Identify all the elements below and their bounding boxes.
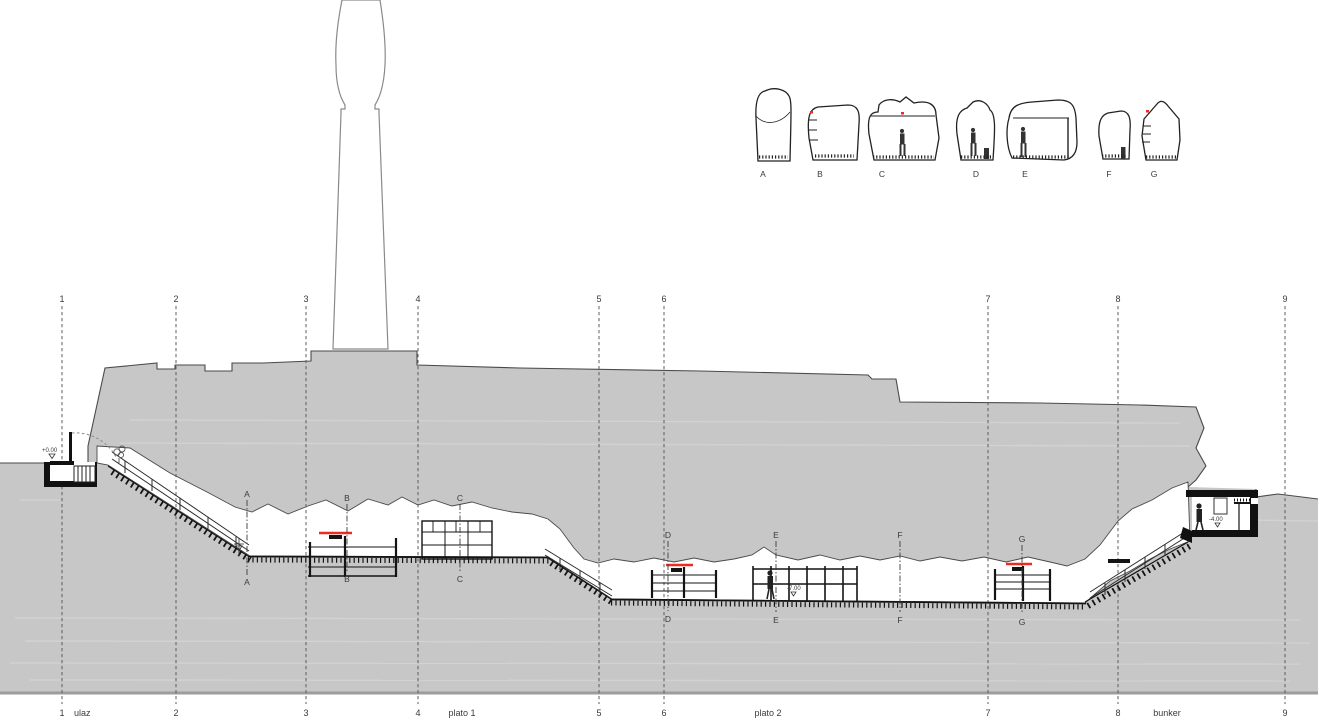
grid-number: 7: [985, 708, 990, 718]
section-letter: D: [665, 530, 671, 540]
section-letter: E: [773, 615, 779, 625]
cross-section-B: [808, 105, 859, 160]
entrance-stair-block: [74, 466, 95, 482]
section-letter: C: [457, 574, 463, 584]
grid-number: 8: [1115, 294, 1120, 304]
rack-B-object: [329, 535, 342, 539]
legend-label: D: [973, 169, 979, 179]
section-drawing: 1 2 3 4 5 6 7 8 9 1 2 3 4 5 6 7 8 9 ulaz…: [0, 0, 1318, 720]
entrance-wall-left: [44, 462, 50, 487]
section-letter: C: [457, 493, 463, 503]
grid-number: 1: [59, 294, 64, 304]
zone-label-plato2: plato 2: [754, 708, 781, 718]
section-letter: A: [244, 489, 250, 499]
stair-landing-right: [1108, 559, 1130, 563]
cross-section-F: [1099, 111, 1130, 159]
level-triangle-entrance: [49, 454, 55, 459]
section-letter: E: [773, 530, 779, 540]
level-marker-entrance: +0.00: [42, 448, 58, 454]
legend-label: E: [1022, 169, 1028, 179]
grid-number: 2: [173, 294, 178, 304]
cross-section-C: [868, 97, 939, 160]
cross-section-A: [756, 89, 791, 161]
cross-section-G-red-dot: [1146, 110, 1149, 113]
cross-section-B-red-dot: [810, 111, 813, 114]
zone-label-bunker: bunker: [1153, 708, 1181, 718]
grid-number: 4: [415, 294, 420, 304]
grid-number: 2: [173, 708, 178, 718]
grid-number: 1: [59, 708, 64, 718]
rack-D-object: [671, 568, 682, 572]
grid-number: 8: [1115, 708, 1120, 718]
entrance-door-mast: [69, 432, 72, 462]
bunker-wall-right: [1250, 490, 1258, 537]
grid-numbers-bottom: 1 2 3 4 5 6 7 8 9 ulaz plato 1 plato 2 b…: [59, 708, 1287, 718]
section-letter: G: [1019, 617, 1026, 627]
level-marker-plato2: -7.00: [787, 586, 801, 592]
section-letter: B: [344, 574, 350, 584]
bunker-locker: [1214, 498, 1227, 514]
section-letter: D: [665, 614, 671, 624]
section-letter: A: [244, 577, 250, 587]
grid-number: 5: [596, 294, 601, 304]
section-letter: G: [1019, 534, 1026, 544]
legend-label: G: [1151, 169, 1158, 179]
section-letter: B: [344, 493, 350, 503]
grid-number: 3: [303, 708, 308, 718]
bunker-wall-bottom: [1192, 530, 1258, 537]
grid-number: 6: [661, 708, 666, 718]
zone-label-ulaz: ulaz: [74, 708, 91, 718]
legend-label: A: [760, 169, 766, 179]
cross-section-E: [1007, 100, 1077, 160]
floor-plato1-hatch: [248, 560, 549, 561]
cross-section-legend: A B C D E F G: [756, 89, 1180, 179]
grid-number: 4: [415, 708, 420, 718]
tower-outline: [333, 0, 388, 349]
grid-numbers-top: 1 2 3 4 5 6 7 8 9: [59, 294, 1287, 304]
section-letter: F: [897, 615, 902, 625]
zone-label-plato1: plato 1: [448, 708, 475, 718]
grid-number: 6: [661, 294, 666, 304]
legend-label: F: [1106, 169, 1111, 179]
section-drawing-page: 1 2 3 4 5 6 7 8 9 1 2 3 4 5 6 7 8 9 ulaz…: [0, 0, 1318, 720]
grid-number: 3: [303, 294, 308, 304]
grid-number: 7: [985, 294, 990, 304]
bunker-wall-top: [1186, 490, 1258, 497]
legend-label: B: [817, 169, 823, 179]
grid-number: 9: [1282, 708, 1287, 718]
level-marker-bunker: -4.00: [1209, 517, 1223, 523]
bunker-wall-notch: [1251, 498, 1258, 504]
cross-section-G: [1142, 101, 1180, 160]
legend-labels: A B C D E F G: [760, 169, 1157, 179]
cross-section-D: [957, 101, 995, 160]
section-letter: F: [897, 530, 902, 540]
floor-plato1: [248, 557, 549, 558]
legend-label: C: [879, 169, 885, 179]
cross-section-C-red-dot: [901, 112, 904, 115]
grid-number: 9: [1282, 294, 1287, 304]
grid-number: 5: [596, 708, 601, 718]
